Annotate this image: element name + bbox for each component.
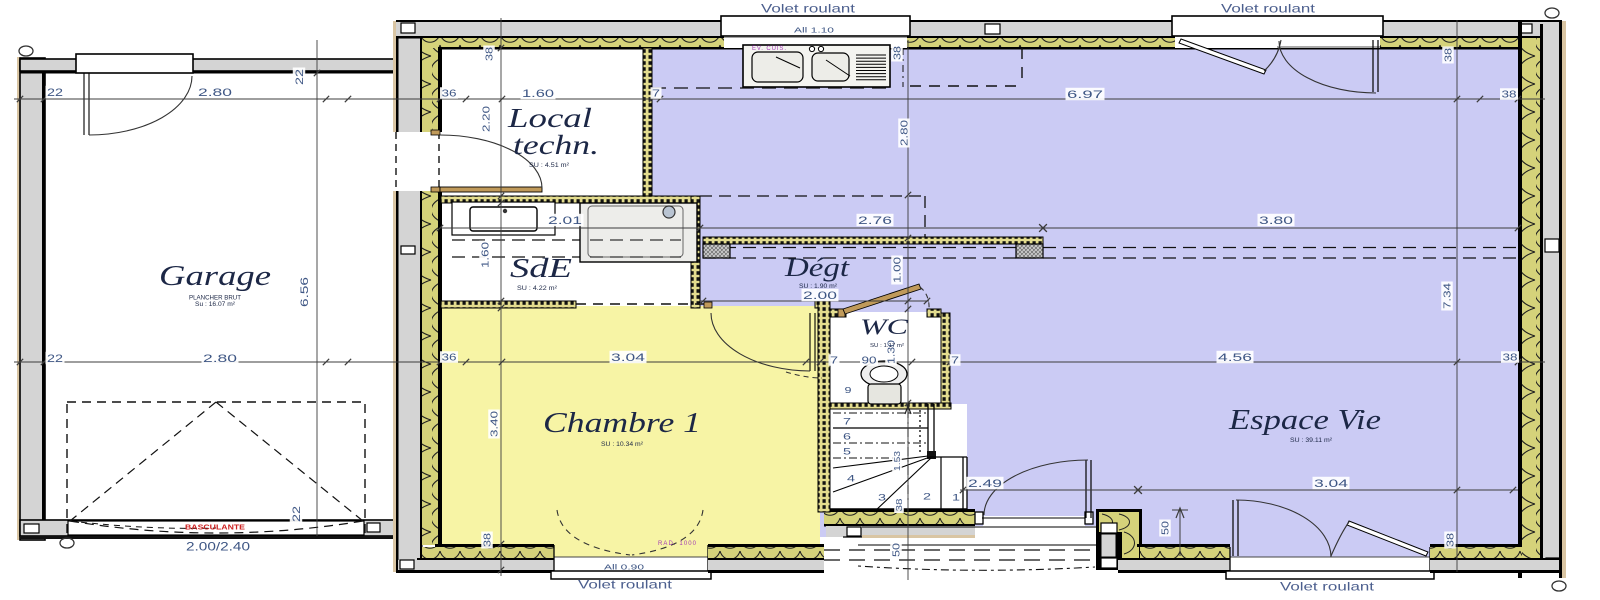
svg-text:36: 36	[442, 353, 458, 364]
svg-text:1.60: 1.60	[481, 241, 492, 268]
svg-text:SU : 4.22 m²: SU : 4.22 m²	[517, 286, 557, 292]
svg-text:2.00/2.40: 2.00/2.40	[186, 539, 250, 553]
svg-text:2.20: 2.20	[482, 105, 493, 132]
svg-text:WC: WC	[860, 314, 908, 339]
svg-text:2.00: 2.00	[803, 290, 837, 302]
svg-text:2.76: 2.76	[858, 215, 892, 227]
svg-text:SU : 1.90 m²: SU : 1.90 m²	[799, 284, 837, 290]
svg-text:38: 38	[1503, 353, 1519, 364]
svg-text:3: 3	[878, 492, 886, 503]
svg-text:38: 38	[485, 46, 496, 61]
svg-text:38: 38	[1446, 532, 1457, 547]
svg-text:6.97: 6.97	[1067, 89, 1103, 101]
svg-text:2.80: 2.80	[203, 353, 237, 365]
svg-text:Su : 16.07 m²: Su : 16.07 m²	[195, 302, 235, 308]
svg-text:2.49: 2.49	[968, 478, 1002, 490]
svg-text:6: 6	[843, 431, 851, 442]
svg-text:Volet roulant: Volet roulant	[1221, 1, 1316, 15]
svg-text:5: 5	[843, 446, 851, 457]
svg-text:38: 38	[895, 498, 904, 512]
svg-text:38: 38	[483, 532, 494, 547]
svg-text:4.56: 4.56	[1218, 352, 1252, 364]
svg-text:9: 9	[845, 386, 853, 395]
svg-text:4: 4	[847, 473, 855, 484]
svg-text:3.04: 3.04	[1314, 478, 1348, 490]
svg-text:1: 1	[952, 492, 960, 503]
svg-text:3.04: 3.04	[611, 352, 645, 364]
svg-text:1.60: 1.60	[522, 88, 554, 100]
svg-text:PLANCHER BRUT: PLANCHER BRUT	[189, 294, 241, 301]
svg-text:2.80: 2.80	[198, 87, 232, 99]
svg-text:22: 22	[291, 506, 303, 522]
svg-text:Volet roulant: Volet roulant	[1280, 579, 1375, 593]
svg-text:3.80: 3.80	[1259, 215, 1293, 227]
svg-text:38: 38	[1444, 47, 1455, 62]
svg-text:2: 2	[923, 491, 931, 502]
svg-text:2.01: 2.01	[548, 215, 582, 227]
svg-text:50: 50	[1161, 520, 1172, 535]
svg-text:38: 38	[1502, 90, 1518, 101]
svg-text:Dégt: Dégt	[784, 253, 850, 282]
svg-text:90: 90	[862, 356, 878, 367]
svg-text:Garage: Garage	[159, 260, 271, 292]
svg-text:22: 22	[294, 69, 306, 85]
svg-text:Volet roulant: Volet roulant	[578, 577, 673, 591]
svg-text:7: 7	[843, 416, 851, 427]
svg-text:38: 38	[893, 45, 904, 60]
svg-text:22: 22	[47, 87, 63, 99]
svg-text:7: 7	[951, 356, 960, 367]
svg-text:7: 7	[830, 356, 839, 367]
svg-text:SU : 4.51 m²: SU : 4.51 m²	[529, 163, 569, 169]
svg-text:Local: Local	[507, 103, 592, 133]
svg-text:3.40: 3.40	[490, 410, 501, 437]
svg-text:1.00: 1.00	[893, 256, 904, 283]
svg-text:SdE: SdE	[510, 253, 573, 283]
svg-text:RAD. 1000: RAD. 1000	[658, 541, 697, 547]
svg-text:SU : 39.11 m²: SU : 39.11 m²	[1290, 438, 1332, 444]
svg-text:1.53: 1.53	[893, 450, 902, 471]
svg-text:SU : 1.17 m²: SU : 1.17 m²	[870, 343, 904, 349]
svg-text:EV. CUIS.: EV. CUIS.	[752, 46, 786, 52]
svg-text:techn.: techn.	[513, 130, 599, 160]
svg-text:All 0.90: All 0.90	[604, 565, 644, 572]
svg-text:6.56: 6.56	[299, 277, 311, 307]
svg-text:Chambre 1: Chambre 1	[543, 408, 701, 439]
svg-text:2.80: 2.80	[900, 119, 911, 146]
svg-text:Volet roulant: Volet roulant	[761, 1, 856, 15]
svg-text:22: 22	[47, 353, 63, 365]
svg-text:7: 7	[652, 89, 661, 100]
svg-text:All 1.10: All 1.10	[794, 26, 834, 35]
svg-text:Espace Vie: Espace Vie	[1228, 405, 1381, 436]
svg-text:36: 36	[442, 89, 458, 100]
svg-text:7.34: 7.34	[1443, 282, 1454, 309]
svg-text:BASCULANTE: BASCULANTE	[185, 525, 245, 532]
svg-text:50: 50	[892, 542, 903, 557]
svg-text:SU : 10.34 m²: SU : 10.34 m²	[601, 442, 643, 448]
